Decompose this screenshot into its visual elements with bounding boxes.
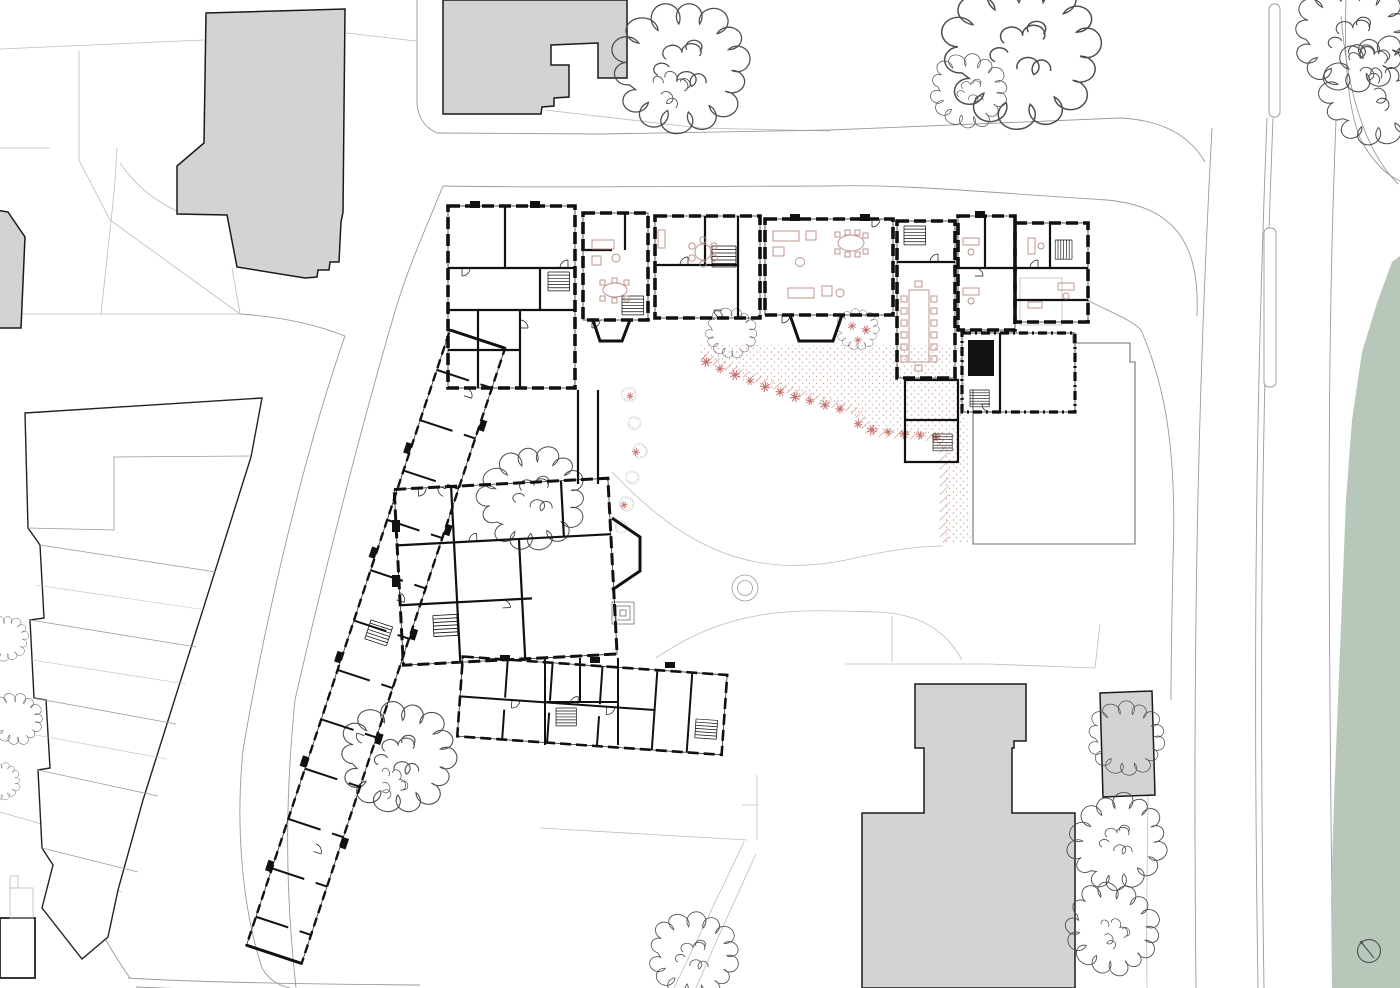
traffic-island — [1264, 228, 1276, 387]
green-area — [1331, 256, 1400, 988]
wall-stubs — [265, 399, 487, 892]
boundary-lines — [973, 332, 1135, 544]
landscape-terrace — [612, 332, 1135, 624]
site-plan-canvas — [0, 0, 1400, 988]
site-plan-page — [0, 0, 1400, 988]
long-wing — [241, 328, 511, 965]
terrace-block-outline — [25, 398, 262, 959]
tree — [1281, 0, 1400, 161]
lawn-feature — [732, 575, 758, 601]
bush-row — [614, 387, 651, 535]
green-strip — [1331, 256, 1400, 988]
context-building-bottom-small — [1100, 691, 1155, 797]
south-east-bar — [457, 657, 727, 755]
tree — [612, 4, 750, 134]
street-corner-curve — [240, 314, 345, 336]
context-building-top-center — [443, 0, 627, 114]
south-cluster — [394, 478, 617, 665]
sitting-room-furniture — [592, 240, 629, 303]
traffic-island — [1269, 4, 1280, 117]
context-building-bottom-cross — [862, 684, 1075, 988]
tree — [331, 694, 465, 822]
connector-rooms — [545, 658, 618, 745]
lounge-furniture — [773, 230, 868, 298]
bottom-left-building — [0, 876, 35, 978]
tree — [635, 899, 751, 988]
right-road-line-1 — [1195, 128, 1212, 988]
bottom-street-kerb — [128, 978, 420, 988]
context-building-top-left — [177, 9, 345, 278]
context-building-left-sliver — [0, 210, 25, 328]
top-right-curve-1 — [1341, 16, 1398, 184]
office-furniture — [963, 238, 1074, 308]
left-terrace-block — [25, 398, 262, 959]
round-table-set — [658, 230, 717, 267]
